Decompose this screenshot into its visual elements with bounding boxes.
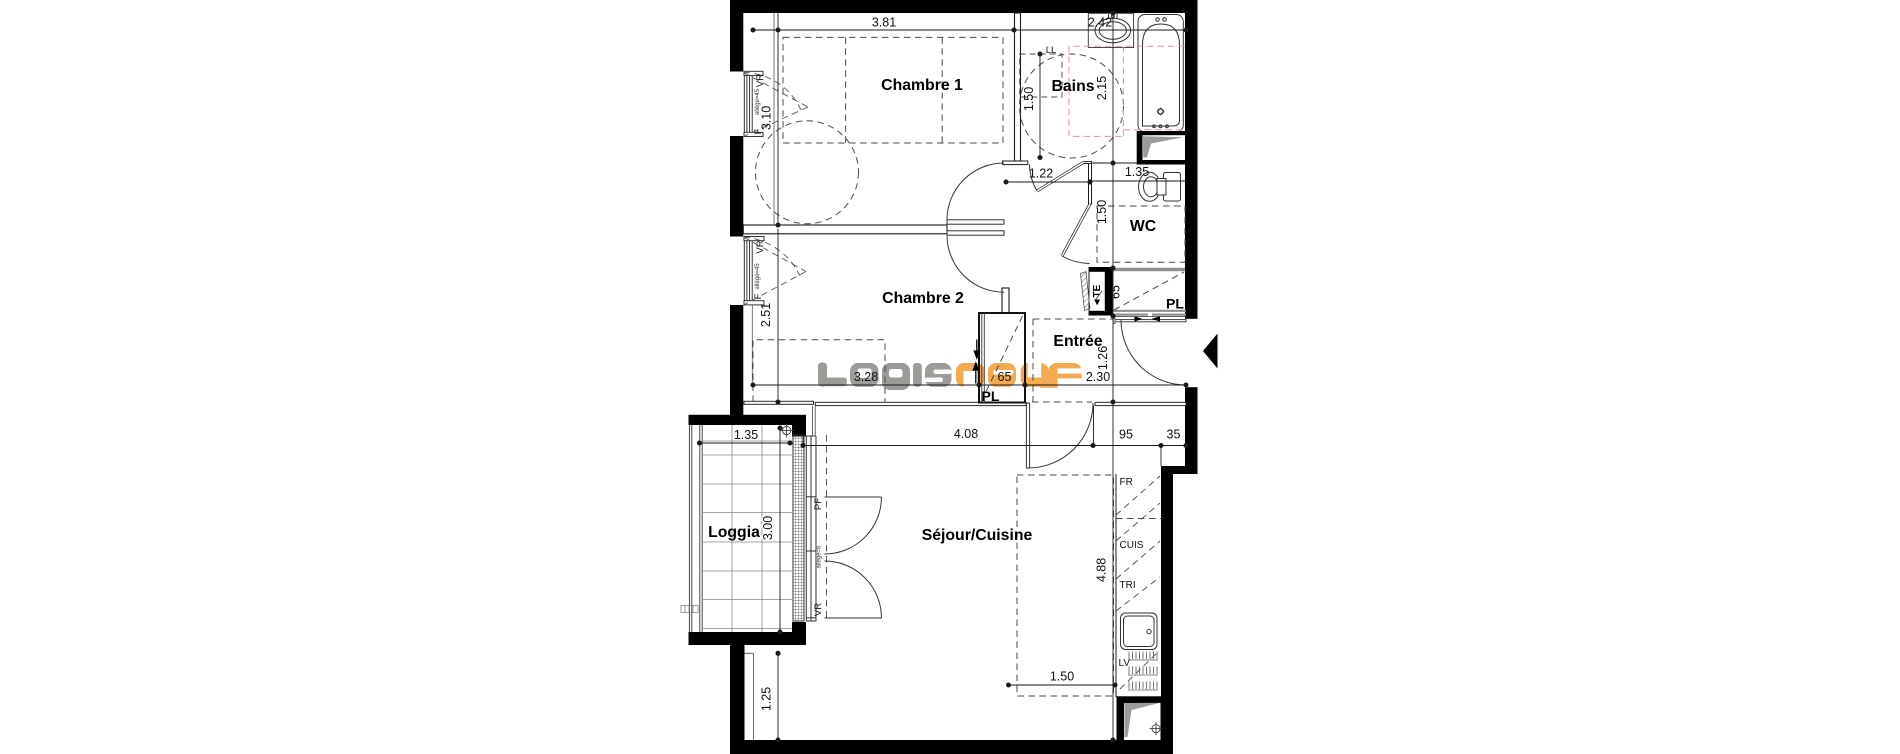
svg-text:1.35: 1.35 (734, 428, 758, 442)
svg-text:Entrée: Entrée (1053, 333, 1102, 350)
svg-text:4.88: 4.88 (1095, 558, 1109, 582)
svg-text:3.81: 3.81 (872, 16, 896, 30)
svg-text:PL: PL (982, 388, 1000, 404)
svg-text:WC: WC (1130, 218, 1156, 235)
svg-text:1.22: 1.22 (1029, 167, 1053, 181)
svg-text:LL: LL (1046, 45, 1057, 56)
svg-text:Chambre 1: Chambre 1 (881, 77, 963, 94)
svg-text:1.50: 1.50 (1022, 87, 1036, 111)
svg-text:PL: PL (1166, 296, 1184, 312)
svg-text:3.10: 3.10 (760, 106, 774, 130)
svg-text:3.00: 3.00 (761, 516, 775, 540)
svg-text:65: 65 (998, 370, 1012, 384)
svg-text:VR: VR (755, 74, 766, 87)
svg-text:2.42: 2.42 (1088, 16, 1112, 30)
svg-text:2.51: 2.51 (759, 303, 773, 327)
svg-text:95: 95 (1119, 428, 1133, 442)
svg-text:Chambre 2: Chambre 2 (882, 290, 964, 307)
svg-text:1.50: 1.50 (1050, 670, 1074, 684)
svg-text:VR: VR (813, 603, 824, 616)
svg-text:◄TE: ◄TE (1092, 284, 1103, 307)
svg-text:1.25: 1.25 (760, 687, 774, 711)
svg-text:65: 65 (1109, 285, 1123, 299)
svg-text:1.35: 1.35 (1125, 165, 1149, 179)
svg-text:CUIS: CUIS (1120, 540, 1144, 551)
svg-text:Séjour/Cuisine: Séjour/Cuisine (922, 527, 1033, 544)
svg-text:3.28: 3.28 (854, 370, 878, 384)
svg-text:allège=45: allège=45 (755, 263, 761, 290)
svg-text:Bains: Bains (1051, 78, 1094, 95)
svg-text:PF: PF (813, 498, 824, 510)
svg-text:FR: FR (1120, 477, 1133, 488)
svg-text:2.15: 2.15 (1095, 76, 1109, 100)
svg-text:1.50: 1.50 (1095, 200, 1109, 224)
svg-text:Loggia: Loggia (708, 524, 760, 541)
svg-text:35: 35 (1167, 428, 1181, 442)
svg-text:allège=6: allège=6 (817, 545, 823, 569)
svg-text:TRI: TRI (1120, 580, 1136, 591)
svg-text:VR: VR (755, 240, 766, 253)
svg-text:4.08: 4.08 (954, 427, 978, 441)
svg-text:2.30: 2.30 (1086, 370, 1110, 384)
